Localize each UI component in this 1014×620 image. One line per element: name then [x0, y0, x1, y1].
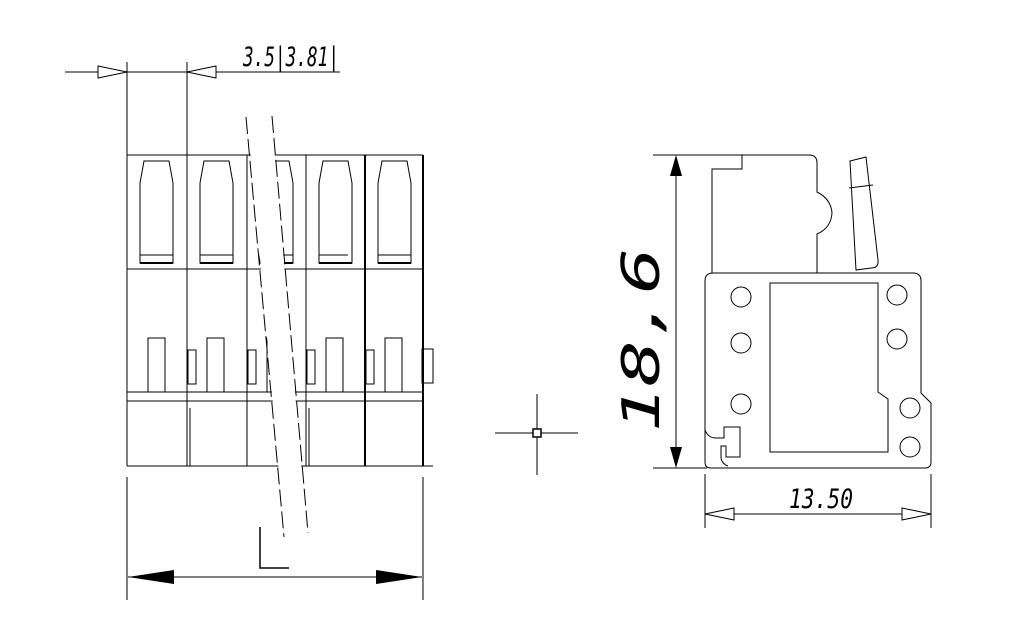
arrow-up-solid [670, 155, 682, 176]
side-view [705, 155, 931, 468]
contact-cavity [378, 161, 411, 263]
drawing-canvas: 3.5|3.81| [0, 0, 1014, 620]
width-dimension-text: 13.50 [789, 484, 853, 515]
hole [887, 285, 907, 305]
height-dimension: 18,6 [612, 155, 744, 468]
pitch-dimension-text: 3.5|3.81| [242, 42, 339, 73]
side-lower-body [705, 273, 931, 468]
lever-small [188, 350, 196, 384]
lever-large [207, 338, 224, 392]
arrow-left-solid [128, 570, 174, 584]
arrow-left-hollow [187, 66, 216, 78]
lever-large [148, 338, 165, 392]
arrow-right-hollow [902, 508, 931, 520]
contact-cavity [200, 161, 233, 263]
side-clip-detail [705, 427, 740, 466]
lever-small [248, 350, 256, 384]
center-mark [495, 394, 578, 475]
contact-cavity [319, 161, 352, 263]
side-lever [850, 157, 878, 270]
hole [731, 287, 751, 307]
side-inner-window [770, 283, 888, 452]
height-dimension-text: 18,6 [612, 248, 672, 433]
overall-width-dimension [127, 477, 423, 600]
contact-cavity [140, 161, 173, 263]
arrow-left-hollow [705, 508, 734, 520]
lever-small [366, 350, 374, 384]
hole [900, 437, 920, 457]
arrow-right-hollow [98, 66, 127, 78]
hole [731, 333, 751, 353]
lever-large [326, 338, 343, 392]
lever-large [385, 338, 402, 392]
arrow-right-solid [376, 570, 422, 584]
lever-small [307, 350, 315, 384]
pitch-dimension: 3.5|3.81| [65, 42, 340, 155]
hole [731, 394, 751, 414]
technical-drawing: 3.5|3.81| [0, 0, 1014, 620]
side-upper-body [712, 155, 832, 273]
hole [900, 398, 920, 418]
arrow-down-solid [670, 447, 682, 468]
width-dimension: 13.50 [705, 474, 931, 528]
hole [887, 329, 907, 349]
